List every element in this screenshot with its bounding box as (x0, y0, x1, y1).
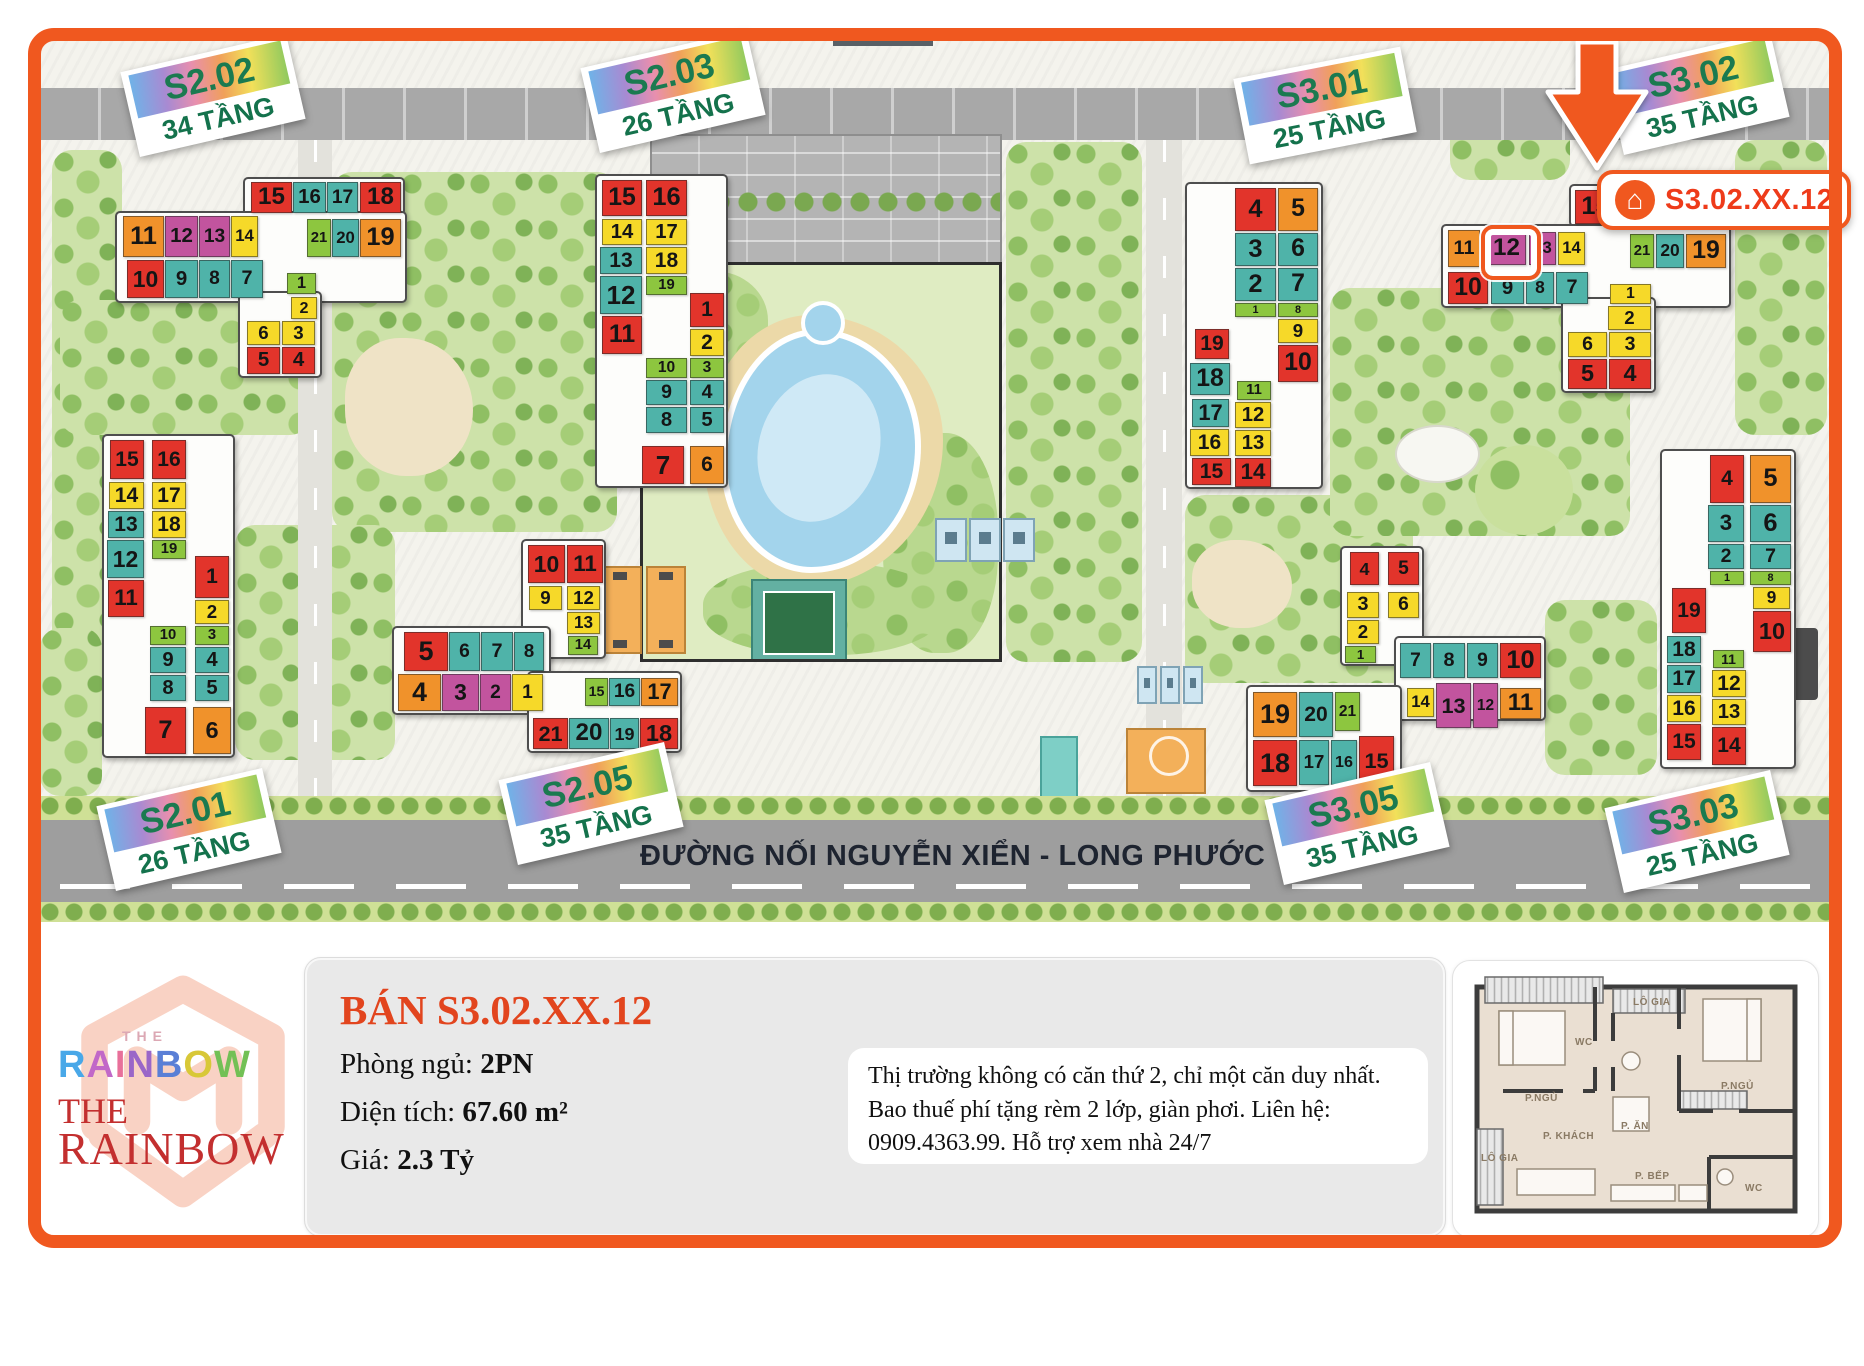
unit-cell-S3.01-19: 19 (1195, 329, 1229, 359)
unit-cell-S3.02-4: 4 (1609, 359, 1651, 389)
unit-cell-S2.05-14: 14 (568, 636, 598, 655)
unit-cell-S2.02-9: 9 (165, 260, 198, 298)
unit-cell-S2.01-4: 4 (195, 647, 229, 673)
building-label-S2.01: S2.0126 TẦNG (96, 768, 281, 891)
unit-cell-S2.03-13: 13 (600, 247, 642, 274)
unit-cell-S3.05-3: 3 (1347, 592, 1379, 618)
unit-cell-S3.05-19: 19 (1253, 692, 1297, 737)
logo-rainbow-red: RAINBOW (58, 1122, 285, 1175)
unit-cell-S2.01-17: 17 (152, 482, 186, 509)
unit-cell-S2.01-18: 18 (152, 511, 186, 538)
unit-cell-S2.03-14: 14 (602, 219, 642, 245)
locator-arrow-icon (1540, 34, 1654, 174)
unit-cell-S3.02-21: 21 (1630, 234, 1654, 268)
room-label: WC (1575, 1037, 1593, 1048)
unit-cell-S2.01-10: 10 (150, 626, 186, 645)
building-label-S2.05: S2.0535 TẦNG (498, 742, 683, 865)
unit-cell-S2.05-13: 13 (567, 612, 600, 634)
unit-cell-S2.03-19: 19 (646, 276, 687, 295)
unit-cell-S3.03-10: 10 (1753, 611, 1791, 652)
unit-cell-S3.05-10: 10 (1500, 643, 1541, 678)
unit-cell-S2.02-7: 7 (231, 260, 263, 298)
listing-description: Thị trường không có căn thứ 2, chỉ một c… (848, 1048, 1428, 1164)
unit-cell-S3.01-1: 1 (1235, 303, 1276, 317)
unit-cell-S3.03-2: 2 (1708, 544, 1744, 569)
building-label-S3.01: S3.0125 TẦNG (1233, 47, 1416, 165)
spec-row: Diện tích: 67.60 m² (340, 1096, 568, 1129)
unit-cell-S3.05-5: 5 (1388, 552, 1419, 585)
unit-cell-S2.01-9: 9 (150, 647, 186, 673)
unit-cell-S3.05-12: 12 (1473, 683, 1498, 728)
unit-cell-S3.02-7: 7 (1556, 272, 1588, 304)
unit-cell-S2.02-21: 21 (307, 219, 331, 257)
room-label: P. BẾP (1635, 1171, 1670, 1182)
unit-cell-S3.03-6: 6 (1750, 505, 1791, 542)
unit-cell-S3.05-9: 9 (1467, 643, 1498, 678)
unit-cell-S2.05-11: 11 (567, 545, 603, 583)
room-label: P. ĂN (1621, 1121, 1649, 1132)
unit-cell-S3.03-18: 18 (1667, 636, 1701, 663)
building-label-S2.03: S2.0326 TẦNG (580, 30, 765, 153)
unit-cell-S3.01-7: 7 (1278, 268, 1318, 301)
unit-cell-S2.03-10: 10 (646, 358, 687, 378)
unit-cell-S2.05-9: 9 (529, 586, 562, 610)
unit-cell-S2.02-11: 11 (123, 216, 164, 257)
unit-cell-S3.05-16: 16 (1331, 740, 1357, 785)
unit-cell-S3.02-19: 19 (1686, 234, 1726, 268)
unit-cell-S2.01-15: 15 (110, 440, 144, 479)
unit-cell-S3.01-5: 5 (1278, 188, 1318, 231)
unit-cell-S2.02-20: 20 (332, 219, 359, 257)
unit-cell-S3.01-12: 12 (1235, 402, 1271, 428)
unit-cell-S3.02-1: 1 (1610, 284, 1651, 304)
unit-cell-S3.03-8: 8 (1750, 571, 1791, 585)
unit-cell-S2.05-2: 2 (480, 674, 511, 711)
unit-cell-S2.05-10: 10 (528, 545, 565, 583)
unit-cell-S2.02-5: 5 (247, 347, 280, 374)
unit-cell-S3.01-16: 16 (1190, 429, 1229, 456)
building-label-S2.02: S2.0234 TẦNG (120, 34, 305, 157)
room-label: P.NGỦ (1525, 1093, 1558, 1104)
unit-cell-S3.03-7: 7 (1750, 544, 1791, 569)
unit-cell-S2.05-19: 19 (610, 718, 639, 749)
unit-cell-S3.02-2: 2 (1608, 306, 1651, 330)
unit-cell-S3.02-10: 10 (1448, 272, 1488, 304)
unit-cell-S3.01-2: 2 (1235, 268, 1276, 301)
unit-cell-S3.03-9: 9 (1753, 587, 1790, 609)
unit-cell-S2.01-16: 16 (152, 440, 186, 479)
unit-cell-S2.02-15: 15 (251, 182, 292, 213)
unit-cell-S2.02-10: 10 (127, 260, 164, 298)
unit-cell-S3.05-14: 14 (1407, 688, 1434, 717)
unit-cell-S3.03-3: 3 (1708, 505, 1744, 542)
unit-cell-S3.03-12: 12 (1712, 670, 1746, 697)
unit-cell-S2.01-1: 1 (195, 556, 229, 598)
unit-12-highlight (1481, 225, 1541, 280)
unit-cell-S2.01-19: 19 (152, 540, 186, 559)
unit-cell-S2.03-3: 3 (690, 358, 724, 378)
unit-cell-S2.03-12: 12 (600, 276, 642, 314)
unit-cell-S3.01-4: 4 (1235, 188, 1276, 231)
unit-cell-S2.02-14: 14 (231, 216, 258, 257)
unit-cell-S3.01-3: 3 (1235, 233, 1276, 266)
unit-cell-S2.05-21: 21 (533, 718, 568, 749)
unit-cell-S2.05-4: 4 (398, 674, 441, 711)
unit-cell-S2.03-15: 15 (602, 180, 642, 216)
spec-row: Phòng ngủ: 2PN (340, 1048, 568, 1081)
floor-plan-card: LÔ GIAWCP.NGỦP.NGỦP. KHÁCHP. ĂNLÔ GIAP. … (1452, 960, 1819, 1238)
unit-cell-S2.02-16: 16 (293, 182, 326, 213)
unit-cell-S2.03-8: 8 (646, 407, 687, 433)
building-label-S3.03: S3.0325 TẦNG (1604, 770, 1789, 893)
room-label: LÔ GIA (1633, 997, 1670, 1008)
unit-cell-S3.05-11: 11 (1500, 688, 1541, 719)
unit-cell-S2.01-12: 12 (107, 540, 144, 578)
unit-callout: ⌂ S3.02.XX.12 (1597, 170, 1851, 230)
unit-cell-S3.01-6: 6 (1278, 233, 1318, 266)
unit-cell-S3.02-20: 20 (1656, 234, 1684, 268)
unit-cell-S2.03-18: 18 (646, 247, 687, 274)
unit-cell-S2.03-5: 5 (690, 407, 724, 433)
unit-cell-S3.02-11: 11 (1448, 230, 1480, 267)
unit-cell-S3.03-4: 4 (1710, 455, 1744, 503)
unit-cell-S2.03-9: 9 (646, 380, 687, 405)
unit-cell-S3.03-1: 1 (1710, 571, 1744, 585)
floor-plan-labels: LÔ GIAWCP.NGỦP.NGỦP. KHÁCHP. ĂNLÔ GIAP. … (1463, 971, 1808, 1227)
unit-cell-S2.05-15: 15 (585, 678, 608, 706)
unit-cell-S3.05-17: 17 (1299, 740, 1329, 785)
unit-cell-S3.01-8: 8 (1278, 303, 1318, 317)
unit-cell-S2.05-12: 12 (567, 586, 600, 610)
unit-cell-S3.02-6: 6 (1568, 332, 1607, 357)
unit-cell-S2.03-7: 7 (642, 446, 684, 484)
unit-cell-S2.02-4: 4 (282, 347, 315, 374)
room-label: P.NGỦ (1721, 1081, 1754, 1092)
unit-cell-S3.03-17: 17 (1667, 665, 1701, 693)
unit-cell-S3.01-17: 17 (1192, 399, 1229, 427)
unit-cell-S3.01-14: 14 (1235, 458, 1271, 487)
unit-cell-S3.03-19: 19 (1672, 588, 1706, 633)
unit-cell-S3.01-15: 15 (1192, 458, 1231, 485)
unit-cell-S2.03-1: 1 (690, 293, 724, 327)
room-label: WC (1745, 1183, 1763, 1194)
unit-cell-S2.03-17: 17 (646, 219, 687, 245)
unit-cell-S2.01-14: 14 (109, 482, 144, 509)
unit-cell-S2.02-17: 17 (327, 182, 358, 213)
unit-cell-S3.01-9: 9 (1278, 319, 1318, 343)
unit-cell-S2.01-5: 5 (195, 675, 229, 701)
unit-cell-S2.05-5: 5 (404, 632, 448, 671)
unit-cell-S2.05-6: 6 (449, 632, 480, 671)
unit-cell-S2.03-4: 4 (690, 380, 724, 405)
unit-cell-S3.05-13: 13 (1436, 683, 1471, 728)
unit-cell-S2.05-16: 16 (609, 678, 640, 706)
unit-cell-S3.05-8: 8 (1433, 643, 1465, 678)
unit-cell-S2.02-3: 3 (282, 321, 315, 345)
unit-cell-S2.02-1: 1 (287, 273, 316, 294)
unit-cell-S2.02-18: 18 (360, 182, 401, 213)
unit-cell-S2.05-17: 17 (641, 678, 678, 706)
room-label: P. KHÁCH (1543, 1131, 1594, 1142)
unit-cell-S3.03-5: 5 (1750, 455, 1791, 503)
room-label: LÔ GIA (1481, 1153, 1518, 1164)
unit-cell-S3.05-18: 18 (1253, 740, 1297, 786)
unit-cell-S2.02-13: 13 (199, 216, 230, 257)
unit-cell-S2.03-11: 11 (602, 316, 642, 354)
rainbow-logo: THE RAINBOW THE RAINBOW (58, 950, 318, 1250)
unit-cell-S3.02-14: 14 (1558, 232, 1585, 265)
unit-cell-S3.02-3: 3 (1609, 332, 1651, 357)
unit-cell-S2.01-13: 13 (108, 511, 144, 538)
unit-cell-S2.01-11: 11 (108, 580, 144, 617)
unit-cell-S2.02-19: 19 (360, 219, 401, 257)
unit-cell-S3.03-16: 16 (1667, 695, 1701, 722)
logo-the-small: THE (122, 1028, 168, 1044)
unit-cell-S3.03-13: 13 (1712, 699, 1746, 725)
unit-cell-S2.02-2: 2 (291, 297, 317, 319)
unit-cell-S3.01-11: 11 (1237, 381, 1271, 400)
unit-cell-S2.03-16: 16 (646, 180, 687, 216)
unit-cell-S2.02-8: 8 (199, 260, 230, 298)
unit-cell-S2.03-6: 6 (690, 446, 724, 484)
unit-cell-S2.03-2: 2 (690, 329, 724, 356)
unit-cell-S3.05-20: 20 (1299, 692, 1333, 737)
unit-cell-S2.05-7: 7 (481, 632, 513, 671)
unit-cell-S2.02-6: 6 (247, 321, 280, 345)
logo-rainbow-word: RAINBOW (58, 1044, 251, 1087)
callout-unit-code: S3.02.XX.12 (1665, 184, 1833, 217)
unit-cell-S3.05-2: 2 (1347, 620, 1379, 644)
unit-cell-S3.03-15: 15 (1667, 724, 1701, 760)
unit-cell-S2.01-8: 8 (150, 675, 186, 701)
unit-cell-S3.05-7: 7 (1400, 643, 1431, 678)
unit-cell-S2.01-3: 3 (195, 626, 229, 645)
listing-title: BÁN S3.02.XX.12 (340, 986, 652, 1034)
unit-cell-S3.03-11: 11 (1713, 650, 1744, 668)
spec-row: Giá: 2.3 Tỷ (340, 1144, 568, 1177)
unit-cell-S3.02-5: 5 (1568, 359, 1607, 389)
unit-cell-S3.05-21: 21 (1335, 692, 1360, 731)
unit-cell-S3.03-14: 14 (1712, 727, 1746, 765)
unit-cell-S3.05-6: 6 (1388, 592, 1419, 618)
unit-cell-S2.05-1: 1 (512, 674, 543, 711)
listing-specs: Phòng ngủ: 2PNDiện tích: 67.60 m²Giá: 2.… (340, 1048, 568, 1192)
unit-cell-S2.05-3: 3 (442, 674, 479, 711)
house-icon: ⌂ (1615, 180, 1655, 220)
unit-cell-S3.01-13: 13 (1235, 430, 1271, 456)
unit-cell-S2.01-6: 6 (193, 707, 231, 754)
unit-cell-S3.05-1: 1 (1345, 646, 1376, 663)
unit-cell-S2.01-2: 2 (195, 600, 229, 624)
unit-cell-S2.02-12: 12 (165, 216, 198, 257)
unit-cell-S3.05-4: 4 (1350, 552, 1379, 585)
unit-cell-S2.05-8: 8 (514, 632, 544, 671)
unit-cell-S3.01-18: 18 (1190, 363, 1230, 395)
unit-cell-S2.05-20: 20 (569, 718, 609, 749)
unit-cell-S3.01-10: 10 (1278, 345, 1318, 382)
unit-cell-S2.01-7: 7 (145, 707, 186, 754)
